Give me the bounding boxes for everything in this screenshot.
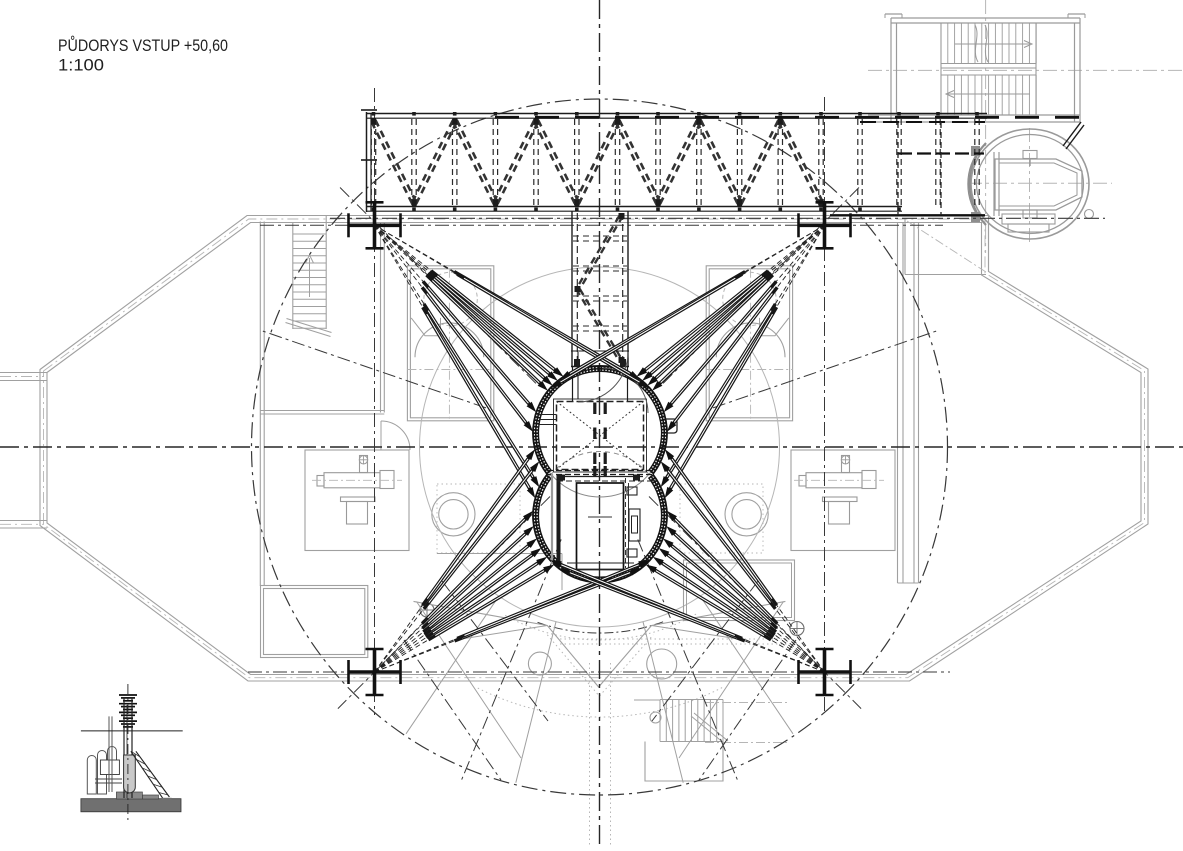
svg-text:1:100: 1:100 [58, 57, 104, 75]
svg-text:PŮDORYS VSTUP +50,60: PŮDORYS VSTUP +50,60 [58, 36, 228, 55]
